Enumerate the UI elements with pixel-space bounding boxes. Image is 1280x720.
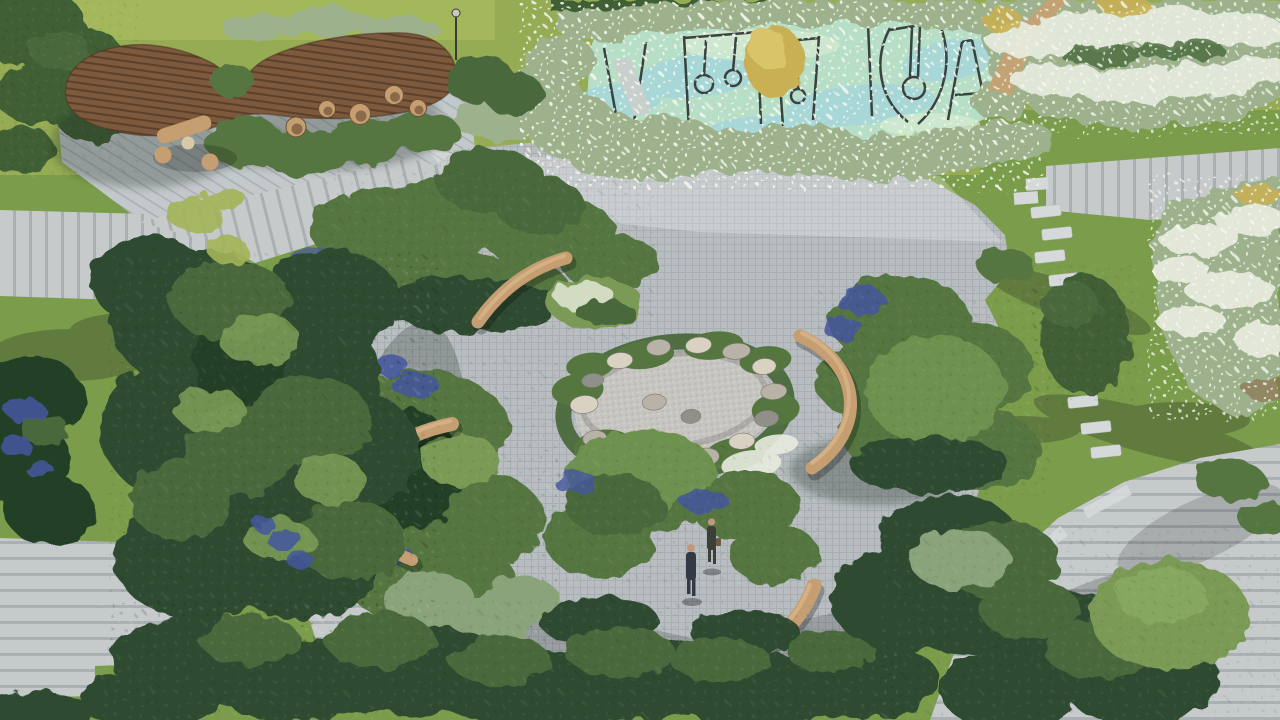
- pergola-part: [202, 154, 219, 171]
- shrubs-west-edge-part: [0, 435, 31, 455]
- people-part: [708, 519, 715, 526]
- groundcover-south-part: [267, 530, 303, 550]
- central-garden-part: [540, 440, 830, 590]
- pergola-part: [390, 92, 400, 102]
- shrubs-west-edge-part: [5, 398, 45, 422]
- bag: [716, 538, 721, 546]
- people-part: [692, 578, 696, 596]
- playground-hedges-part: [750, 28, 786, 68]
- pergola-part: [155, 147, 172, 164]
- tree-cluster-southeast-part: [1195, 460, 1265, 500]
- people-part: [686, 552, 696, 580]
- shrubs-west-edge-part: [203, 188, 247, 212]
- tree-cluster-southeast-part: [880, 520, 1280, 720]
- people-part: [708, 548, 711, 562]
- shrubs-west-edge-part: [208, 236, 248, 264]
- central-garden-part: [575, 300, 635, 324]
- pergola-part: [485, 73, 545, 117]
- pergola-part: [415, 106, 424, 115]
- flower-bed-east: [1150, 175, 1280, 420]
- groundcover-south-part: [100, 600, 900, 720]
- shrubs-west-edge-part: [26, 462, 54, 478]
- pergola-part: [390, 112, 460, 152]
- groundcover-south-part: [253, 518, 277, 532]
- garden-mound-small: [547, 277, 643, 329]
- shrubs-west-edge-part: [5, 475, 95, 545]
- people-part: [687, 544, 695, 552]
- pergola-part: [210, 64, 254, 96]
- garden-aerial-rendering: [0, 0, 1280, 720]
- hanging-chair[interactable]: [410, 100, 427, 117]
- flower-field-northeast-part: [985, 0, 1280, 135]
- paths-right-part: [1014, 191, 1039, 205]
- people-part: [703, 569, 721, 576]
- flower-bed-east-part: [1150, 175, 1280, 420]
- hanging-chair[interactable]: [350, 104, 371, 125]
- pergola-part: [182, 137, 195, 150]
- flower-field-northeast: [980, 0, 1280, 135]
- tree-east-part: [1030, 260, 1140, 400]
- tree-cluster-west-part: [110, 250, 440, 650]
- pergola-part: [292, 124, 303, 135]
- pergola-part: [324, 107, 333, 116]
- people-part: [682, 598, 702, 606]
- hanging-chair[interactable]: [319, 101, 336, 118]
- pergola-part: [356, 111, 367, 122]
- people-part: [713, 548, 716, 564]
- garden-mound-south: [540, 430, 830, 590]
- hanging-chair[interactable]: [286, 117, 306, 137]
- groundcover-south-part: [286, 552, 314, 568]
- people-part: [707, 526, 716, 550]
- hanging-chair[interactable]: [385, 86, 404, 105]
- tree-east-part: [977, 247, 1033, 283]
- people-part: [687, 578, 691, 594]
- flower-field-northeast-part: [982, 0, 1280, 135]
- lamp-post-part: [452, 9, 460, 17]
